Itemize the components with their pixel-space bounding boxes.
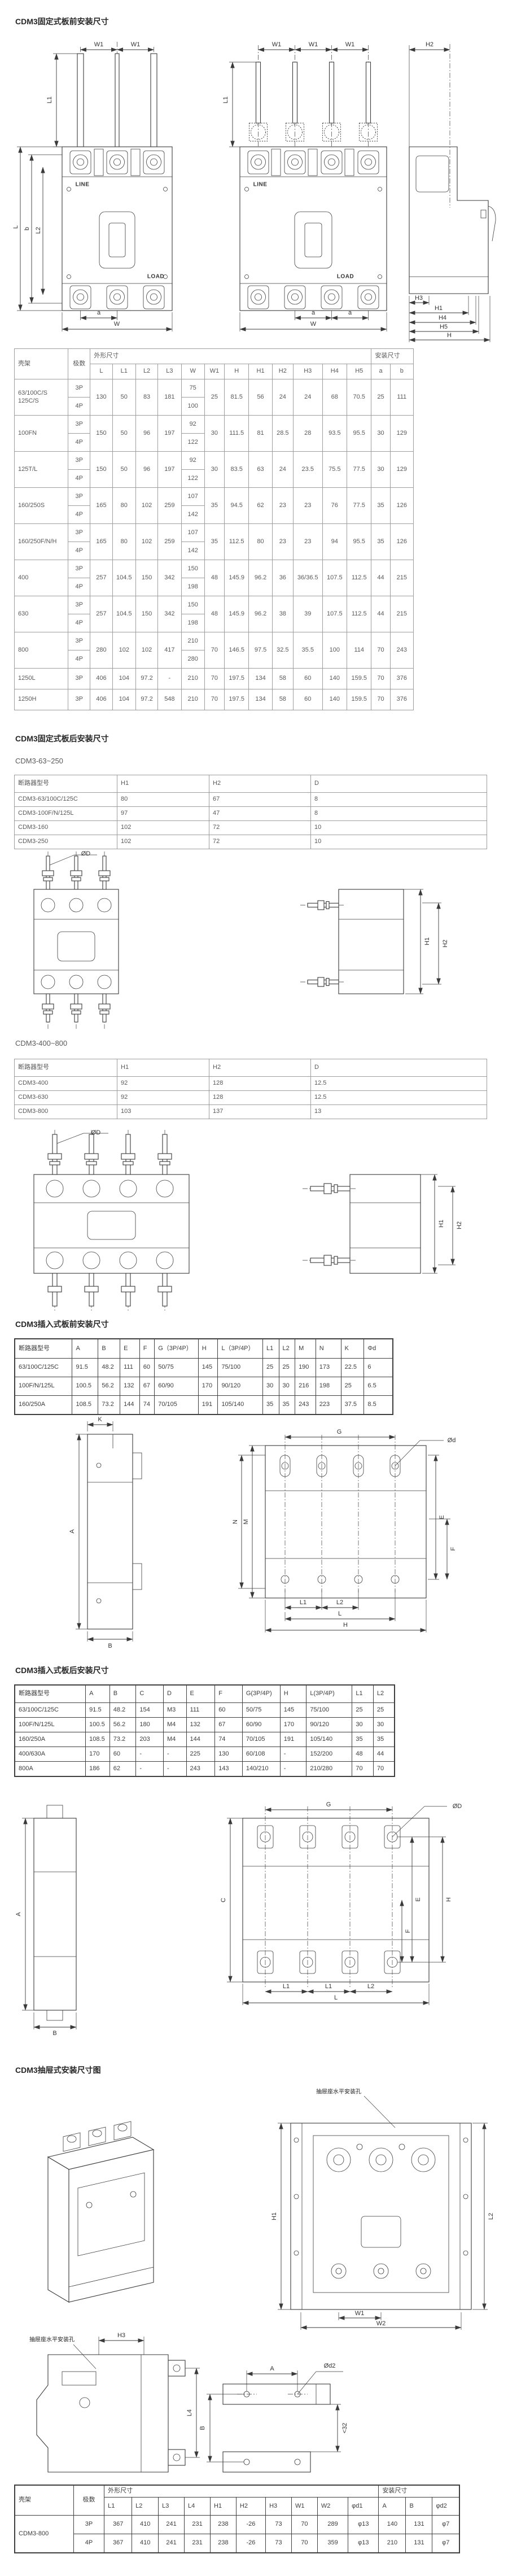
cell: 44 xyxy=(371,596,390,632)
cell: 140 xyxy=(379,2516,406,2534)
dim-label: H3 xyxy=(117,2332,125,2339)
cell: 75/100 xyxy=(218,1359,263,1377)
cell: - xyxy=(136,1762,164,1777)
cell: 23 xyxy=(293,488,322,524)
cell: 142 xyxy=(181,506,204,524)
cell: 4P xyxy=(68,650,90,669)
figure-annotation: 抽屉座水平安装孔 xyxy=(316,2087,361,2095)
dim-label: H1 xyxy=(271,2212,278,2220)
dim-label: H xyxy=(343,1622,348,1628)
dim-label: L4 xyxy=(186,2409,193,2416)
cell: 280 xyxy=(90,632,112,669)
cell: 259 xyxy=(158,524,181,560)
figure-drawer-drawings: 抽屉座水平安装孔H1L2W1W2抽屉座水平安装孔H3L4AØd2B<32 xyxy=(0,2084,508,2482)
dim-label: a xyxy=(312,309,315,316)
cell: φ13 xyxy=(348,2534,379,2553)
header-cell: A xyxy=(86,1685,110,1703)
header-cell: 安装尺寸 xyxy=(371,349,414,364)
header-cell: 极数 xyxy=(73,2485,104,2516)
cell: 145 xyxy=(280,1703,306,1718)
cell: 70 xyxy=(204,669,224,689)
cell: 197.5 xyxy=(224,669,248,689)
cell: 80 xyxy=(117,793,209,807)
cell: 100 xyxy=(322,632,347,669)
cell: - xyxy=(280,1762,306,1777)
figure-plugin-rear-drawings: ABCØDGEFHL1L1L2L xyxy=(0,1787,508,2058)
cell: 3P xyxy=(68,669,90,689)
dim-label: L1 xyxy=(46,97,53,103)
cell: 60 xyxy=(139,1359,155,1377)
figure-fixed-rear-large-drawings: ØDH1H2 xyxy=(0,1127,508,1316)
cell: 241 xyxy=(159,2516,185,2534)
cell: 30 xyxy=(279,1377,295,1396)
cell: 130 xyxy=(90,379,112,416)
cell: 128 xyxy=(209,1077,311,1091)
cell: 145.9 xyxy=(224,596,248,632)
header-cell: H2 xyxy=(209,775,311,793)
header-cell: G（3P/4P） xyxy=(155,1339,199,1359)
cell: 63/100C/S 125C/S xyxy=(15,379,68,416)
header-cell: H1 xyxy=(210,2498,236,2516)
header-cell: L2 xyxy=(132,2498,159,2516)
header-cell: C xyxy=(136,1685,164,1703)
cell: 70 xyxy=(352,1762,374,1777)
cell: 24 xyxy=(272,452,293,488)
cell: 70/105 xyxy=(155,1396,199,1415)
cell: 4P xyxy=(68,614,90,632)
cell: 102 xyxy=(135,488,157,524)
cell: CDM3-160 xyxy=(15,821,117,835)
cell: 28.5 xyxy=(272,416,293,452)
cell: 122 xyxy=(181,434,204,452)
cell: 3P xyxy=(68,452,90,470)
cell: 203 xyxy=(136,1732,164,1747)
dim-label: A xyxy=(270,2365,274,2372)
cell: 8 xyxy=(311,793,487,807)
cell: 23 xyxy=(293,524,322,560)
dim-label: L2 xyxy=(336,1599,343,1606)
dim-label: H3 xyxy=(415,295,423,302)
dim-label: a xyxy=(348,309,352,316)
cell: 342 xyxy=(158,596,181,632)
cell: 44 xyxy=(373,1747,395,1762)
cell: 190 xyxy=(295,1359,316,1377)
cell: 122 xyxy=(181,470,204,488)
cell: 180 xyxy=(136,1718,164,1732)
cell: 70 xyxy=(373,1762,395,1777)
cell: 23.5 xyxy=(293,452,322,488)
cell: 210 xyxy=(181,689,204,710)
header-cell: E xyxy=(120,1339,140,1359)
header-cell: K xyxy=(341,1339,364,1359)
cell: 367 xyxy=(104,2534,132,2553)
dim-label: L1 xyxy=(300,1599,306,1606)
cell: 150 xyxy=(90,452,112,488)
cell: 97 xyxy=(117,807,209,821)
cell: 80 xyxy=(112,524,135,560)
cell: -26 xyxy=(236,2534,265,2553)
cell: 74 xyxy=(215,1732,243,1747)
cell: 111 xyxy=(120,1359,140,1377)
cell: 417 xyxy=(158,632,181,669)
cell: 4P xyxy=(68,398,90,416)
cell: 60 xyxy=(293,689,322,710)
cell: 3P xyxy=(68,416,90,434)
cell: 48.2 xyxy=(98,1359,120,1377)
cell: 150 xyxy=(181,560,204,578)
cell: 102 xyxy=(112,632,135,669)
cell: 4P xyxy=(68,578,90,596)
header-cell: H1 xyxy=(117,775,209,793)
dim-label: H4 xyxy=(439,315,446,321)
dim-label: W1 xyxy=(272,41,282,48)
cell: 140 xyxy=(322,689,347,710)
cell: 25 xyxy=(352,1703,374,1718)
cell: 75/100 xyxy=(306,1703,352,1718)
cell: 100F/N/125L xyxy=(15,1718,86,1732)
dim-label: W1 xyxy=(309,41,318,48)
header-cell: b xyxy=(390,364,413,379)
dim-label: L xyxy=(338,1610,341,1617)
cell: 60/90 xyxy=(155,1377,199,1396)
cell: 197.5 xyxy=(224,689,248,710)
dim-label: A xyxy=(15,1912,22,1916)
cell: 3P xyxy=(68,689,90,710)
figure-annotation: 抽屉座水平安装孔 xyxy=(29,2335,75,2343)
dim-label: C xyxy=(220,1898,227,1902)
cell: 50/75 xyxy=(155,1359,199,1377)
cell: 128 xyxy=(209,1091,311,1105)
cell: 91.5 xyxy=(72,1359,98,1377)
cell: 145 xyxy=(198,1359,218,1377)
cell: 30 xyxy=(352,1718,374,1732)
cell: 231 xyxy=(185,2516,211,2534)
cell: 22.5 xyxy=(341,1359,364,1377)
cell: 102 xyxy=(117,821,209,835)
cell: 70 xyxy=(371,689,390,710)
header-cell: Φd xyxy=(364,1339,393,1359)
cell: 8.5 xyxy=(364,1396,393,1415)
cell: 410 xyxy=(132,2516,159,2534)
dim-label: L1 xyxy=(283,1983,290,1990)
header-cell: W2 xyxy=(317,2498,348,2516)
dim-label: W xyxy=(310,321,316,328)
header-cell: H3 xyxy=(266,2498,292,2516)
cell: 137 xyxy=(209,1105,311,1119)
cell: 70 xyxy=(291,2516,317,2534)
dim-label: W2 xyxy=(376,2320,386,2327)
dim-label: L2 xyxy=(35,227,42,234)
cell: 225 xyxy=(186,1747,215,1762)
cell: 74 xyxy=(139,1396,155,1415)
header-cell: H1 xyxy=(249,364,272,379)
cell: 30 xyxy=(204,416,224,452)
cell: 97.2 xyxy=(135,689,157,710)
cell: CDM3-400 xyxy=(15,1077,117,1091)
cell: 81 xyxy=(249,416,272,452)
cell: 132 xyxy=(120,1377,140,1396)
cell: 112.5 xyxy=(224,524,248,560)
cell: 35 xyxy=(371,488,390,524)
cell: CDM3-800 xyxy=(15,1105,117,1119)
cell: 48 xyxy=(204,560,224,596)
cell: 126 xyxy=(390,488,413,524)
cell: 97.2 xyxy=(135,669,157,689)
cell: 63/100C/125C xyxy=(15,1703,86,1718)
dim-label: Ød2 xyxy=(324,2363,336,2369)
cell: 154 xyxy=(136,1703,164,1718)
cell: 342 xyxy=(158,560,181,596)
header-cell: 外形尺寸 xyxy=(104,2485,379,2498)
cell: 376 xyxy=(390,689,413,710)
cell: 100FN xyxy=(15,416,68,452)
dim-label: B xyxy=(108,1643,112,1649)
dim-label: <32 xyxy=(341,2423,348,2434)
cell: 108.5 xyxy=(72,1396,98,1415)
cell: 94 xyxy=(322,524,347,560)
cell: 144 xyxy=(120,1396,140,1415)
header-cell: B xyxy=(110,1685,136,1703)
cell: 6.5 xyxy=(364,1377,393,1396)
header-cell: H xyxy=(198,1339,218,1359)
cell: 191 xyxy=(198,1396,218,1415)
header-cell: L2 xyxy=(373,1685,395,1703)
cell: 81.5 xyxy=(224,379,248,416)
cell: 129 xyxy=(390,452,413,488)
cell: 400 xyxy=(15,560,68,596)
cell: 289 xyxy=(317,2516,348,2534)
cell: M4 xyxy=(163,1732,186,1747)
dim-label: LINE xyxy=(253,182,268,188)
dim-label: W xyxy=(114,321,120,328)
cell: φ7 xyxy=(432,2516,459,2534)
cell: 4P xyxy=(73,2534,104,2553)
cell: 107.5 xyxy=(322,596,347,632)
cell: 170 xyxy=(198,1377,218,1396)
cell: 6 xyxy=(364,1359,393,1377)
cell: 198 xyxy=(316,1377,341,1396)
cell: 93.5 xyxy=(322,416,347,452)
cell: 60/90 xyxy=(242,1718,280,1732)
cell: 67 xyxy=(139,1377,155,1396)
table-plugin-rear-dimensions: 断路器型号ABCDEFG(3P/4P)HL(3P/4P)L1L263/100C/… xyxy=(14,1684,395,1777)
cell: 630 xyxy=(15,596,68,632)
header-cell: 断路器型号 xyxy=(15,1339,72,1359)
header-cell: 壳架 xyxy=(15,2485,73,2516)
header-cell: L2 xyxy=(279,1339,295,1359)
cell: 25 xyxy=(373,1703,395,1718)
cell: 165 xyxy=(90,524,112,560)
header-cell: H1 xyxy=(117,1059,209,1077)
cell: 198 xyxy=(181,614,204,632)
header-cell: G(3P/4P) xyxy=(242,1685,280,1703)
dim-label: H1 xyxy=(435,305,443,312)
cell: φ7 xyxy=(432,2534,459,2553)
cell: 28 xyxy=(293,416,322,452)
cell: 75.5 xyxy=(322,452,347,488)
cell: 112.5 xyxy=(347,560,371,596)
header-cell: H4 xyxy=(322,364,347,379)
cell: 60/108 xyxy=(242,1747,280,1762)
cell: 70 xyxy=(204,632,224,669)
dim-label: LINE xyxy=(76,182,90,188)
cell: 104 xyxy=(112,669,135,689)
cell: 259 xyxy=(158,488,181,524)
table-fixed-front-dimensions: 壳架极数外形尺寸安装尺寸LL1L2L3WW1HH1H2H3H4H5ab63/10… xyxy=(14,348,414,710)
header-cell: H2 xyxy=(209,1059,311,1077)
cell: 12.5 xyxy=(311,1077,487,1091)
cell: 210 xyxy=(181,669,204,689)
cell: 92 xyxy=(181,452,204,470)
cell: 4P xyxy=(68,542,90,560)
cell: 367 xyxy=(104,2516,132,2534)
cell: 36/36.5 xyxy=(293,560,322,596)
dim-label: M xyxy=(243,1519,249,1524)
cell: 73.2 xyxy=(110,1732,136,1747)
cell: 243 xyxy=(295,1396,316,1415)
cell: 75 xyxy=(181,379,204,398)
cell: 30 xyxy=(204,452,224,488)
cell: 191 xyxy=(280,1732,306,1747)
cell: 50 xyxy=(112,416,135,452)
cell: 134 xyxy=(249,669,272,689)
cell: 257 xyxy=(90,560,112,596)
cell: 30 xyxy=(373,1718,395,1732)
cell: 25 xyxy=(341,1377,364,1396)
cell: 140 xyxy=(322,669,347,689)
cell: 107 xyxy=(181,488,204,506)
cell: 70 xyxy=(371,632,390,669)
cell: 160/250S xyxy=(15,488,68,524)
cell: 144 xyxy=(186,1732,215,1747)
cell: 62 xyxy=(110,1762,136,1777)
dim-label: ØD xyxy=(453,1803,462,1810)
header-cell: 壳架 xyxy=(15,349,68,379)
cell: 47 xyxy=(209,807,311,821)
dim-label: N xyxy=(232,1520,239,1524)
dim-label: B xyxy=(52,2030,56,2037)
cell: 186 xyxy=(86,1762,110,1777)
cell: 406 xyxy=(90,689,112,710)
cell: 231 xyxy=(185,2534,211,2553)
header-cell: H2 xyxy=(272,364,293,379)
header-cell: D xyxy=(311,1059,487,1077)
cell: 105/140 xyxy=(306,1732,352,1747)
cell: 410 xyxy=(132,2534,159,2553)
cell: 210 xyxy=(379,2534,406,2553)
cell: 160/250A xyxy=(15,1396,72,1415)
table-fixed-rear-400-800: 断路器型号H1H2DCDM3-4009212812.5CDM3-63092128… xyxy=(14,1059,487,1119)
cell: 216 xyxy=(295,1377,316,1396)
header-cell: L1 xyxy=(262,1339,279,1359)
dim-label: L2 xyxy=(488,2213,494,2220)
dim-label: a xyxy=(97,309,100,316)
cell: 111 xyxy=(186,1703,215,1718)
cell: 112.5 xyxy=(347,596,371,632)
cell: 198 xyxy=(181,578,204,596)
dim-label: H1 xyxy=(424,937,431,945)
cell: 3P xyxy=(68,596,90,614)
header-cell: L xyxy=(90,364,112,379)
header-cell: H xyxy=(224,364,248,379)
cell: 24 xyxy=(272,379,293,416)
cell: 150 xyxy=(90,416,112,452)
dim-label: G xyxy=(326,1801,331,1808)
cell: 58 xyxy=(272,669,293,689)
cell: 25 xyxy=(262,1359,279,1377)
cell: 80 xyxy=(249,524,272,560)
cell: 72 xyxy=(209,821,311,835)
dim-label: W1 xyxy=(131,41,141,48)
cell: - xyxy=(163,1762,186,1777)
dim-label: B xyxy=(199,2426,206,2430)
cell: 95.5 xyxy=(347,416,371,452)
cell: 107 xyxy=(181,524,204,542)
cell: 223 xyxy=(316,1396,341,1415)
cell: 181 xyxy=(158,379,181,416)
cell: 30 xyxy=(262,1377,279,1396)
cell: 125T/L xyxy=(15,452,68,488)
cell: 548 xyxy=(158,689,181,710)
header-cell: N xyxy=(316,1339,341,1359)
cell: 8 xyxy=(311,807,487,821)
cell: 103 xyxy=(117,1105,209,1119)
dim-label: W1 xyxy=(355,2310,365,2317)
cell: 94.5 xyxy=(224,488,248,524)
cell: 215 xyxy=(390,560,413,596)
header-cell: H3 xyxy=(293,364,322,379)
cell: 215 xyxy=(390,596,413,632)
dim-label: H5 xyxy=(440,324,448,330)
cell: 56 xyxy=(249,379,272,416)
cell: 35 xyxy=(352,1732,374,1747)
cell: 77.5 xyxy=(347,488,371,524)
cell: 77.5 xyxy=(347,452,371,488)
cell: 12.5 xyxy=(311,1091,487,1105)
header-cell: D xyxy=(163,1685,186,1703)
cell: 3P xyxy=(68,560,90,578)
cell: 92 xyxy=(181,416,204,434)
cell: 30 xyxy=(371,452,390,488)
cell: 210 xyxy=(181,632,204,650)
header-cell: φd2 xyxy=(432,2498,459,2516)
cell: 131 xyxy=(406,2534,432,2553)
cell: 100 xyxy=(181,398,204,416)
cell: 92 xyxy=(117,1077,209,1091)
dim-label: H xyxy=(445,1897,452,1902)
figure-fixed-rear-small-drawings: ØDH1H2 xyxy=(0,847,508,1033)
header-cell: L4 xyxy=(185,2498,211,2516)
cell: 406 xyxy=(90,669,112,689)
cell: 1250H xyxy=(15,689,68,710)
figure-plugin-front-drawings: KABØdMNGEFL1L2LH xyxy=(0,1414,508,1663)
dim-label: H2 xyxy=(456,1221,463,1229)
cell: 50/75 xyxy=(242,1703,280,1718)
cell: 39 xyxy=(293,596,322,632)
header-cell: W1 xyxy=(291,2498,317,2516)
cell: 159.5 xyxy=(347,669,371,689)
dim-label: W1 xyxy=(94,41,104,48)
cell: 37.5 xyxy=(341,1396,364,1415)
cell: 197 xyxy=(158,416,181,452)
cell: 90/120 xyxy=(218,1377,263,1396)
cell: 25 xyxy=(204,379,224,416)
header-cell: 外形尺寸 xyxy=(90,349,371,364)
cell: 48.2 xyxy=(110,1703,136,1718)
cell: 100.5 xyxy=(72,1377,98,1396)
cell: M4 xyxy=(163,1718,186,1732)
header-cell: H xyxy=(280,1685,306,1703)
